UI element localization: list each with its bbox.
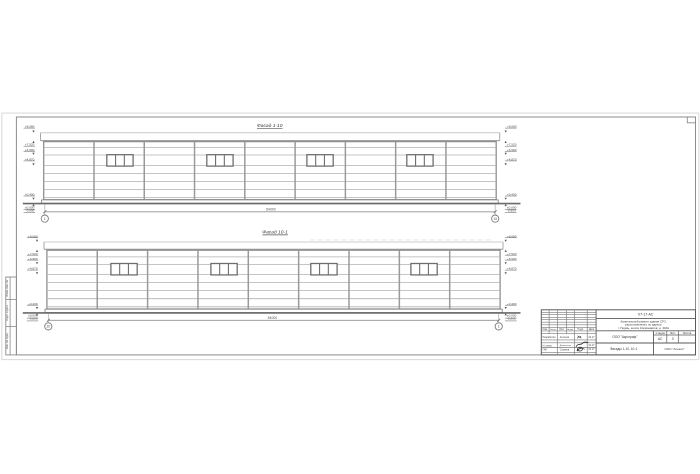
- svg-text:1: 1: [44, 217, 46, 221]
- svg-text:Взам. инв. №: Взам. инв. №: [5, 280, 9, 297]
- svg-text:-0,800: -0,800: [29, 317, 38, 321]
- svg-text:Подп. и дата: Подп. и дата: [5, 305, 9, 321]
- svg-text:АС: АС: [658, 337, 663, 341]
- svg-text:10: 10: [493, 217, 497, 221]
- svg-text:54000: 54000: [268, 316, 278, 320]
- svg-text:ООО "Альянс": ООО "Альянс": [664, 347, 684, 351]
- svg-text:04.17: 04.17: [589, 348, 596, 351]
- svg-text:ГАП: ГАП: [543, 348, 548, 351]
- svg-text:Стадия: Стадия: [656, 331, 666, 335]
- svg-text:04.17: 04.17: [589, 344, 596, 347]
- svg-text:Сазанов: Сазанов: [560, 348, 570, 351]
- svg-text:Подп.: Подп.: [578, 328, 585, 331]
- svg-text:Изм.: Изм.: [543, 328, 548, 331]
- svg-text:Листов: Листов: [683, 331, 692, 335]
- svg-text:1: 1: [498, 325, 500, 329]
- svg-text:Н. контр.: Н. контр.: [543, 344, 553, 347]
- svg-text:Дата: Дата: [589, 328, 595, 331]
- svg-text:07-17-АС: 07-17-АС: [638, 312, 654, 316]
- svg-text:-0,800: -0,800: [507, 317, 516, 321]
- svg-text:Кол.уч: Кол.уч: [550, 329, 556, 331]
- svg-text:Инв. № подл.: Инв. № подл.: [5, 332, 9, 349]
- svg-text:Дементьев: Дементьев: [560, 345, 572, 347]
- svg-text:54000: 54000: [266, 208, 276, 212]
- svg-text:№ док.: № док.: [567, 328, 574, 331]
- svg-text:ООО "Акрограф": ООО "Акрограф": [612, 335, 637, 339]
- svg-text:Лист: Лист: [559, 328, 565, 331]
- svg-text:Разработал: Разработал: [543, 336, 557, 339]
- svg-text:3: 3: [672, 337, 674, 341]
- svg-text:10: 10: [46, 325, 50, 329]
- svg-text:Антонов: Антонов: [560, 336, 570, 339]
- svg-text:Лист: Лист: [670, 331, 677, 335]
- svg-text:Фасады 1-10, 10-1.: Фасады 1-10, 10-1.: [610, 347, 638, 351]
- svg-text:г. Пермь, шоссе Космонавтов, д: г. Пермь, шоссе Космонавтов, д. 316А: [618, 326, 669, 330]
- svg-text:04.17: 04.17: [589, 336, 596, 339]
